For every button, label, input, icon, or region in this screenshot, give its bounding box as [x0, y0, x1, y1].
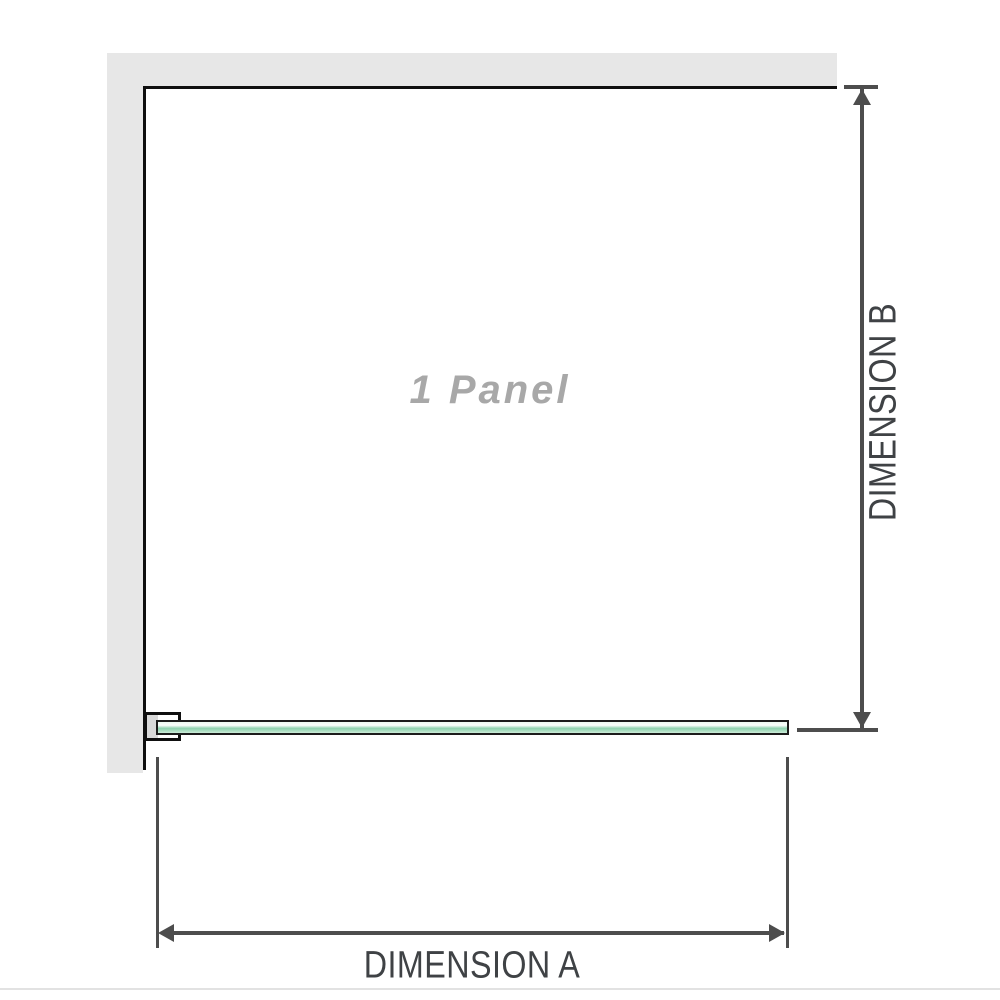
dimension-b-bottom-tick	[797, 728, 878, 732]
dimension-a-right-extension-line	[786, 757, 789, 948]
dimension-a-left-extension-line	[156, 757, 159, 948]
arrow-down-icon	[853, 712, 871, 728]
wall-edge-left-line	[143, 86, 146, 770]
dimension-a-label: DIMENSION A	[364, 945, 580, 988]
panel-count-label: 1 Panel	[143, 368, 837, 413]
arrow-right-icon	[769, 924, 785, 942]
glass-panel	[156, 720, 789, 735]
wall-left	[107, 53, 143, 773]
shower-screen-diagram: 1 Panel DIMENSION B DIMENSION A	[0, 0, 1000, 1000]
wall-edge-top-line	[143, 86, 837, 89]
dimension-a-line	[162, 931, 784, 935]
arrow-left-icon	[158, 924, 174, 942]
wall-top	[107, 53, 837, 86]
image-bottom-rule	[0, 988, 1000, 990]
dimension-b-label: DIMENSION B	[863, 303, 906, 521]
arrow-up-icon	[853, 89, 871, 105]
